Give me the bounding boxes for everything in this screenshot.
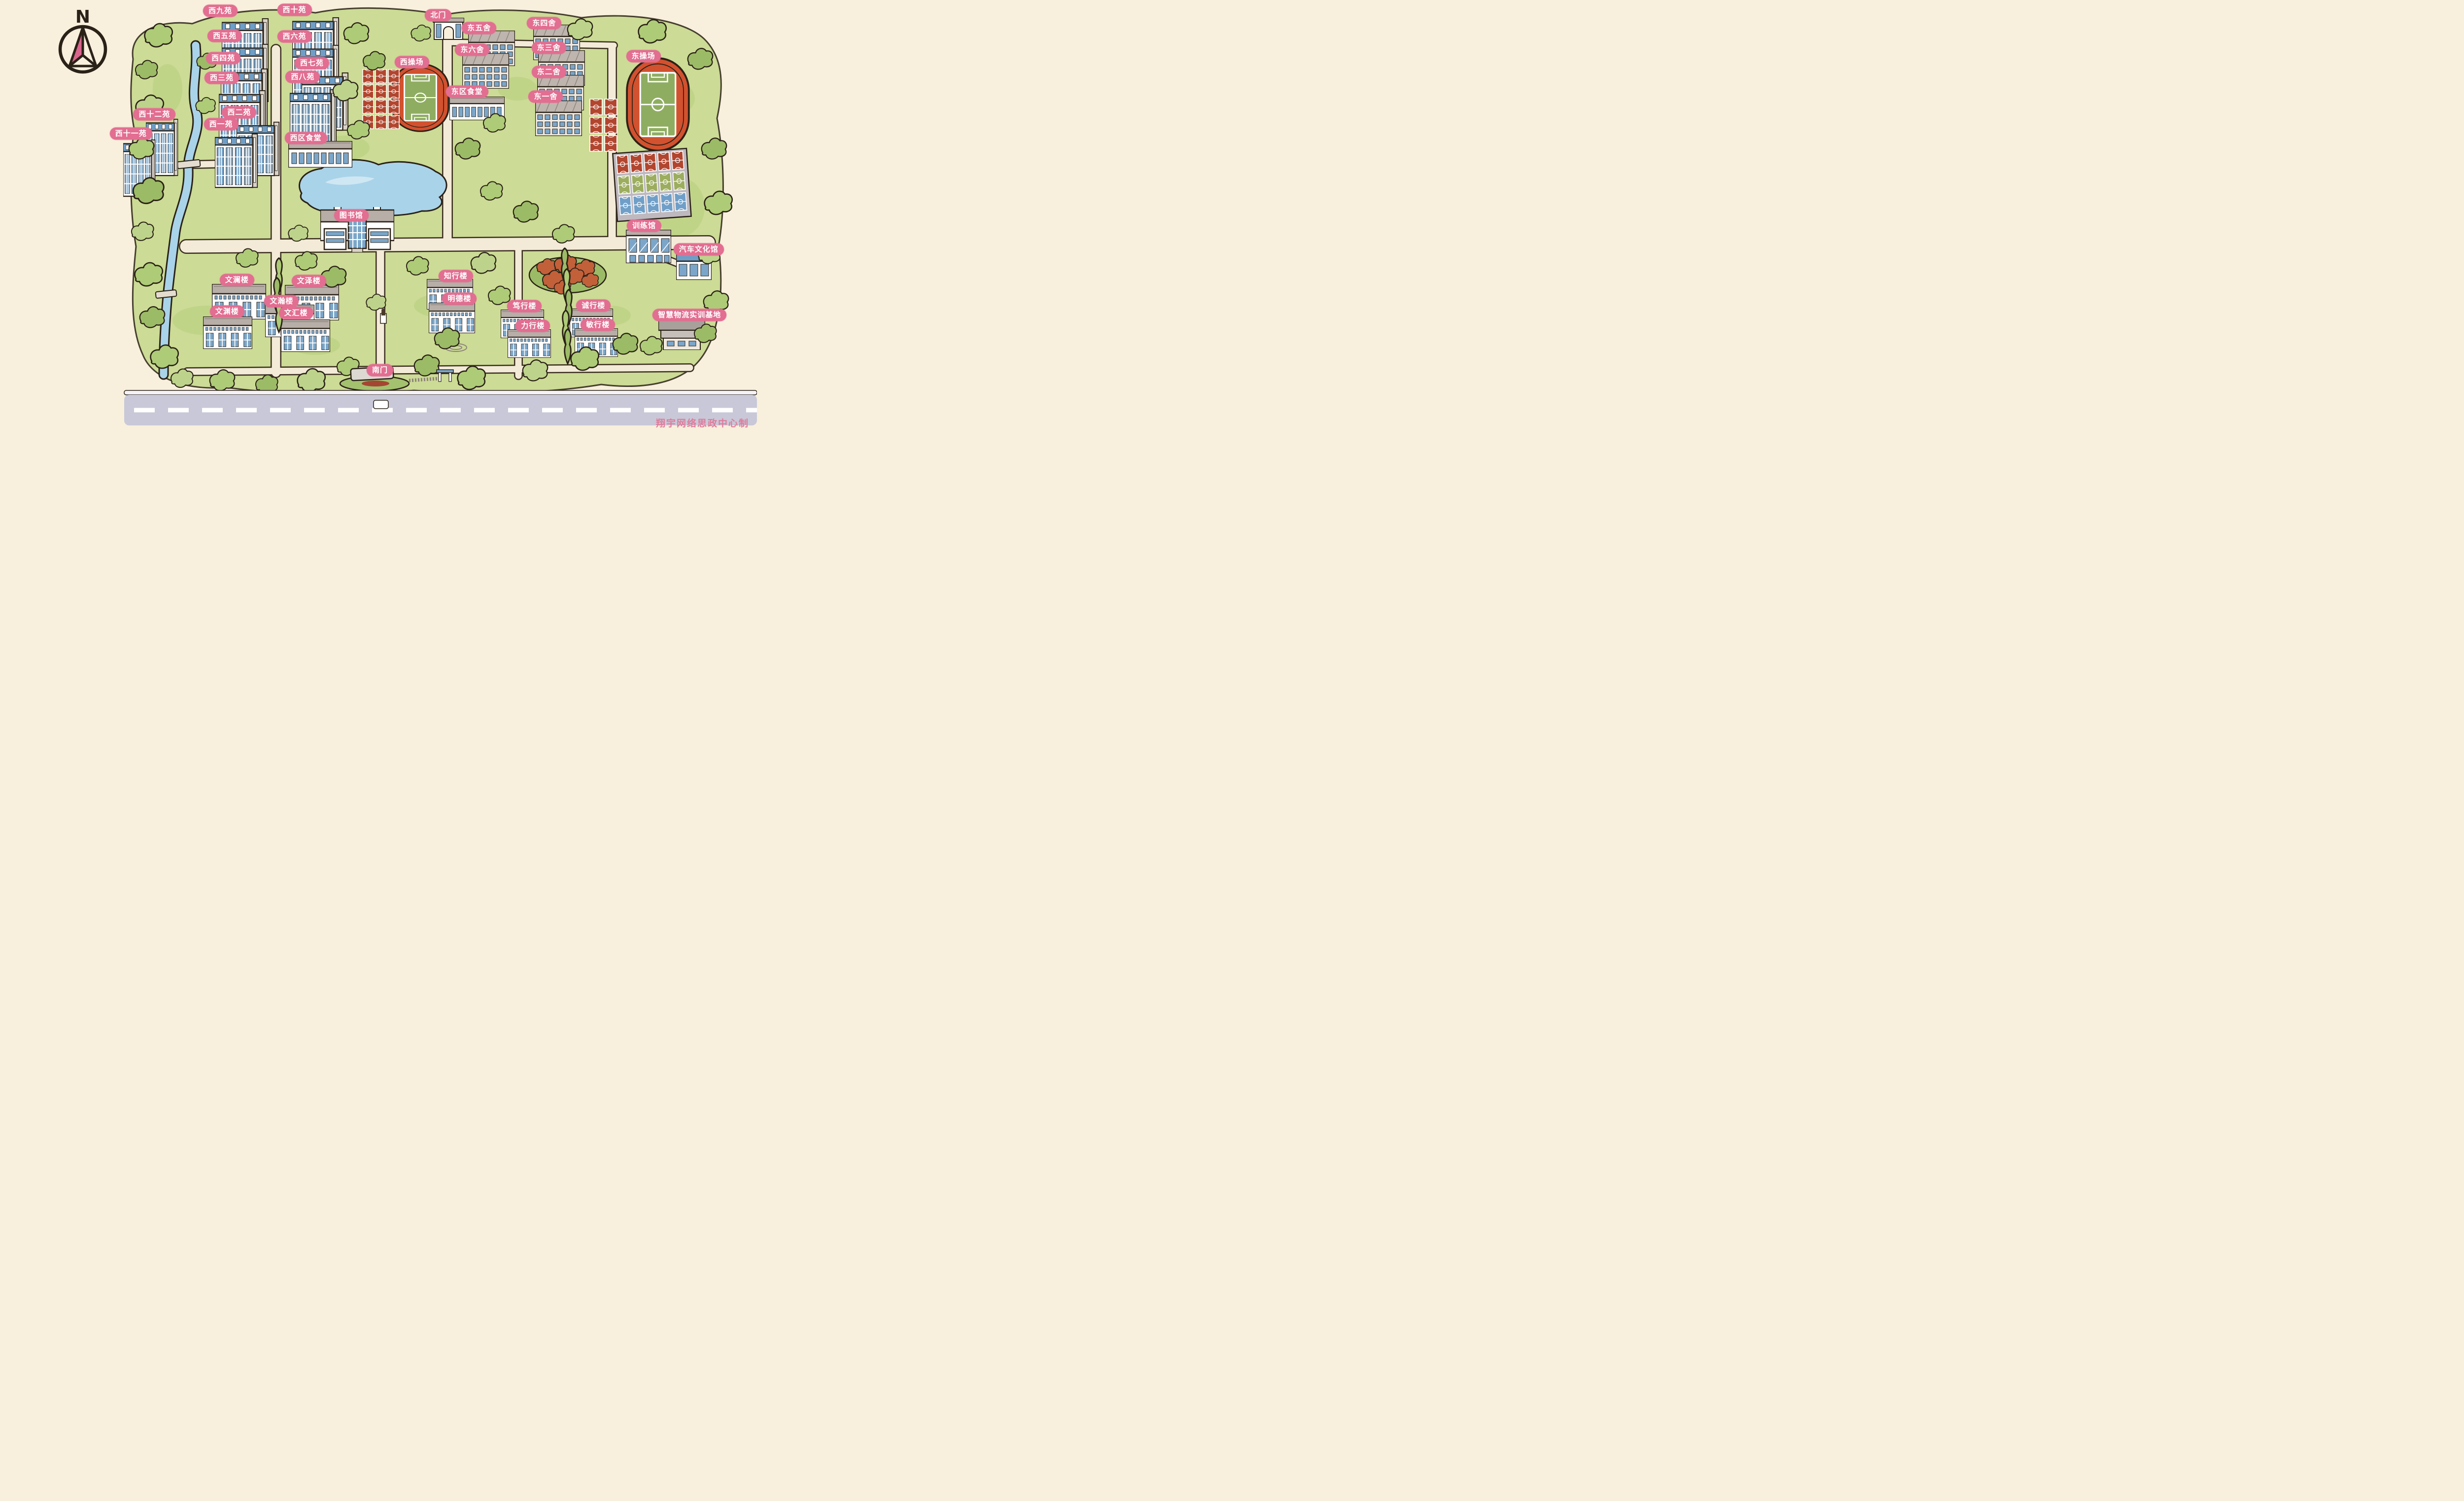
map-illustration: N (0, 0, 757, 430)
credit-text: 翔宇网络思政中心制 (656, 416, 749, 429)
west-stadium (392, 64, 448, 132)
southeast-court-complex (613, 148, 691, 221)
library-building (320, 206, 394, 252)
pond (299, 160, 446, 215)
campus-map: N 西九苑西十苑西五苑西六苑西四苑西七苑西三苑西八苑西二苑西一苑西十二苑西十一苑… (0, 0, 757, 430)
compass: N (60, 7, 105, 72)
east-stadium (627, 58, 689, 150)
vehicle (374, 400, 388, 409)
north-gate-building (433, 18, 464, 39)
compass-n-label: N (75, 7, 90, 27)
